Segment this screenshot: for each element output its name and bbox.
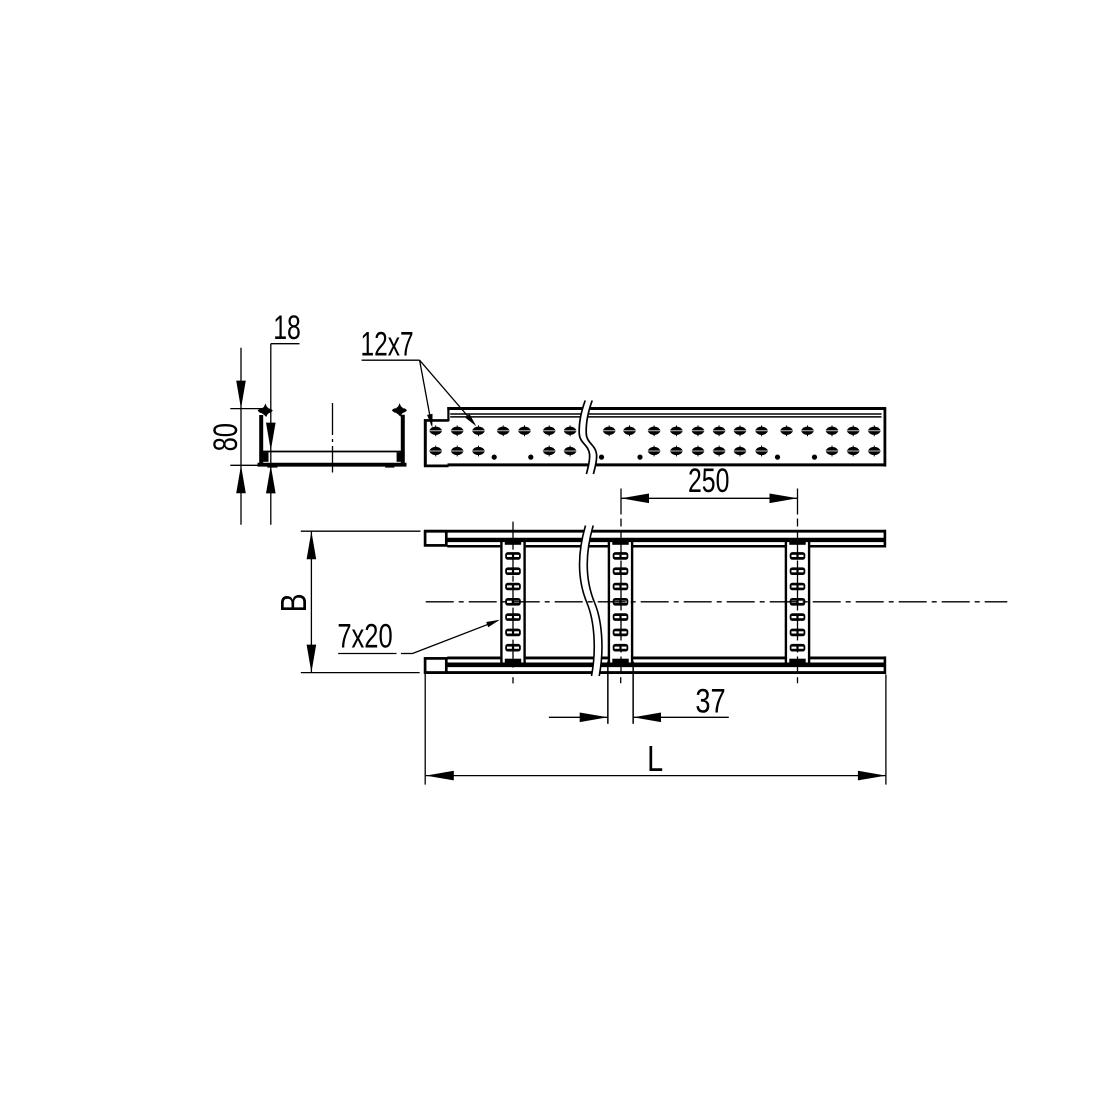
svg-text:18: 18 xyxy=(273,309,301,347)
svg-text:L: L xyxy=(647,738,663,779)
svg-text:7x20: 7x20 xyxy=(337,618,392,656)
svg-text:B: B xyxy=(273,593,314,612)
svg-text:37: 37 xyxy=(695,681,725,720)
svg-text:12x7: 12x7 xyxy=(361,325,414,363)
svg-text:250: 250 xyxy=(688,462,729,500)
svg-text:80: 80 xyxy=(207,423,245,451)
